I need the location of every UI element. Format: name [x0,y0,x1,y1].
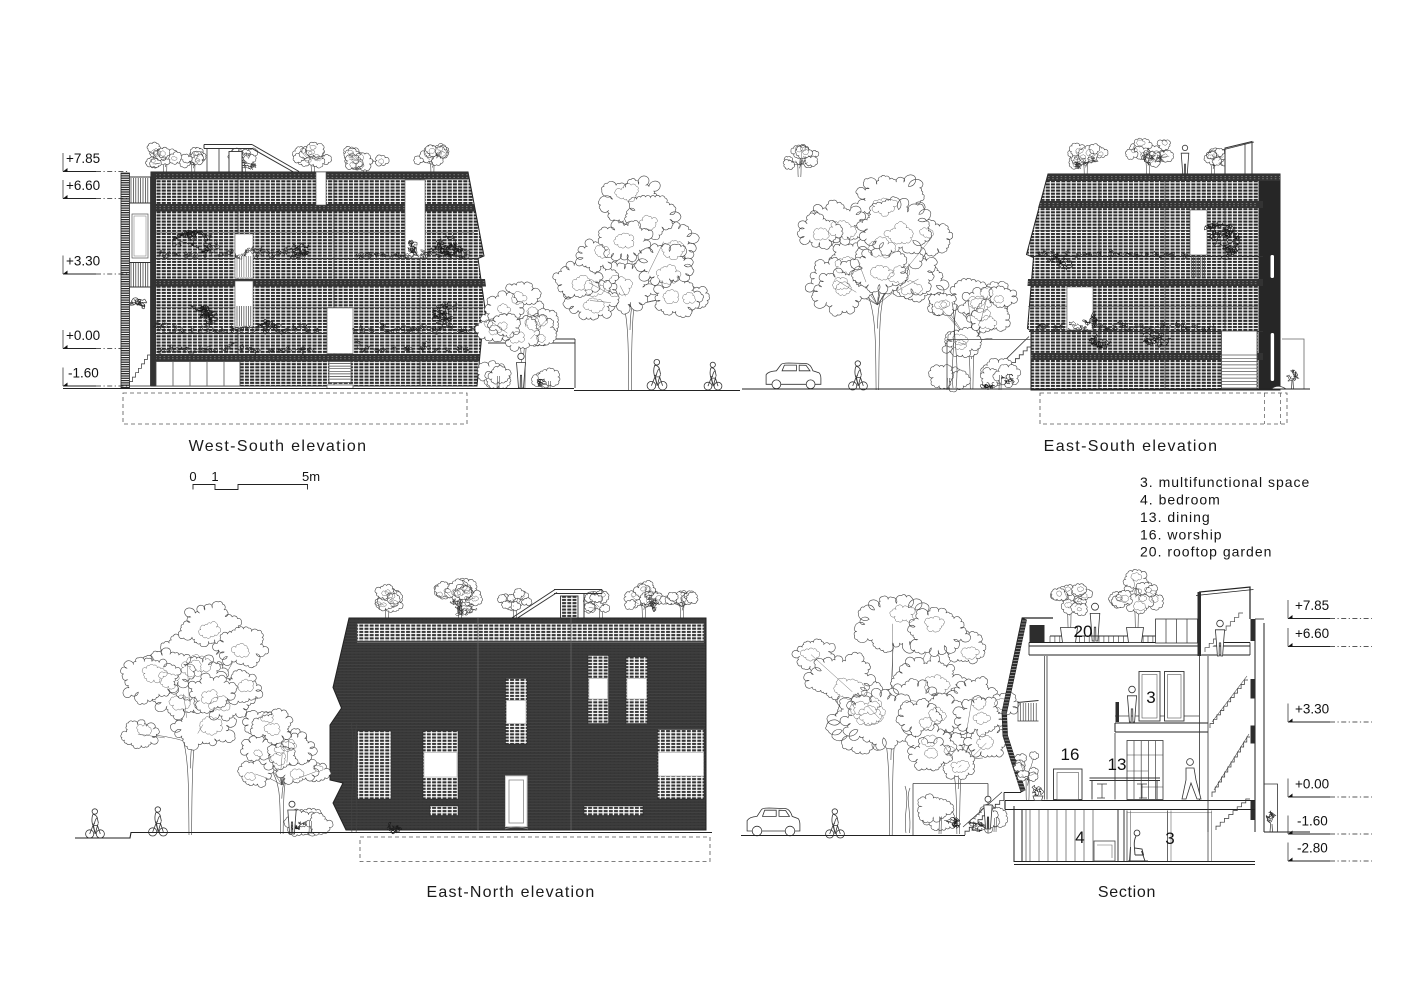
svg-text:-1.60: -1.60 [68,366,99,381]
svg-text:-1.60: -1.60 [1297,814,1328,829]
svg-text:20. rooftop garden: 20. rooftop garden [1140,544,1272,560]
svg-text:3. multifunctional space: 3. multifunctional space [1140,474,1310,490]
svg-text:East-South elevation: East-South elevation [1044,438,1219,455]
svg-text:20: 20 [1074,622,1093,641]
svg-text:1: 1 [211,469,218,484]
svg-text:5m: 5m [302,469,320,484]
svg-text:+7.85: +7.85 [1295,598,1329,613]
svg-text:13. dining: 13. dining [1140,509,1211,525]
svg-text:4: 4 [1075,828,1084,847]
svg-text:+0.00: +0.00 [1295,777,1329,792]
svg-text:+3.30: +3.30 [66,254,100,269]
svg-text:+7.85: +7.85 [66,151,100,166]
svg-text:+6.60: +6.60 [66,178,100,193]
svg-text:0: 0 [189,469,196,484]
svg-text:+0.00: +0.00 [66,328,100,343]
svg-text:Section: Section [1098,884,1156,901]
svg-text:3: 3 [1165,829,1174,848]
svg-text:+3.30: +3.30 [1295,702,1329,717]
svg-text:-2.80: -2.80 [1297,841,1328,856]
svg-text:East-North elevation: East-North elevation [427,884,596,901]
svg-text:16. worship: 16. worship [1140,527,1223,543]
svg-text:3: 3 [1146,688,1155,707]
svg-text:16: 16 [1061,745,1080,764]
svg-text:13: 13 [1108,755,1127,774]
svg-text:4. bedroom: 4. bedroom [1140,492,1221,508]
svg-text:+6.60: +6.60 [1295,626,1329,641]
svg-text:West-South elevation: West-South elevation [189,438,368,455]
